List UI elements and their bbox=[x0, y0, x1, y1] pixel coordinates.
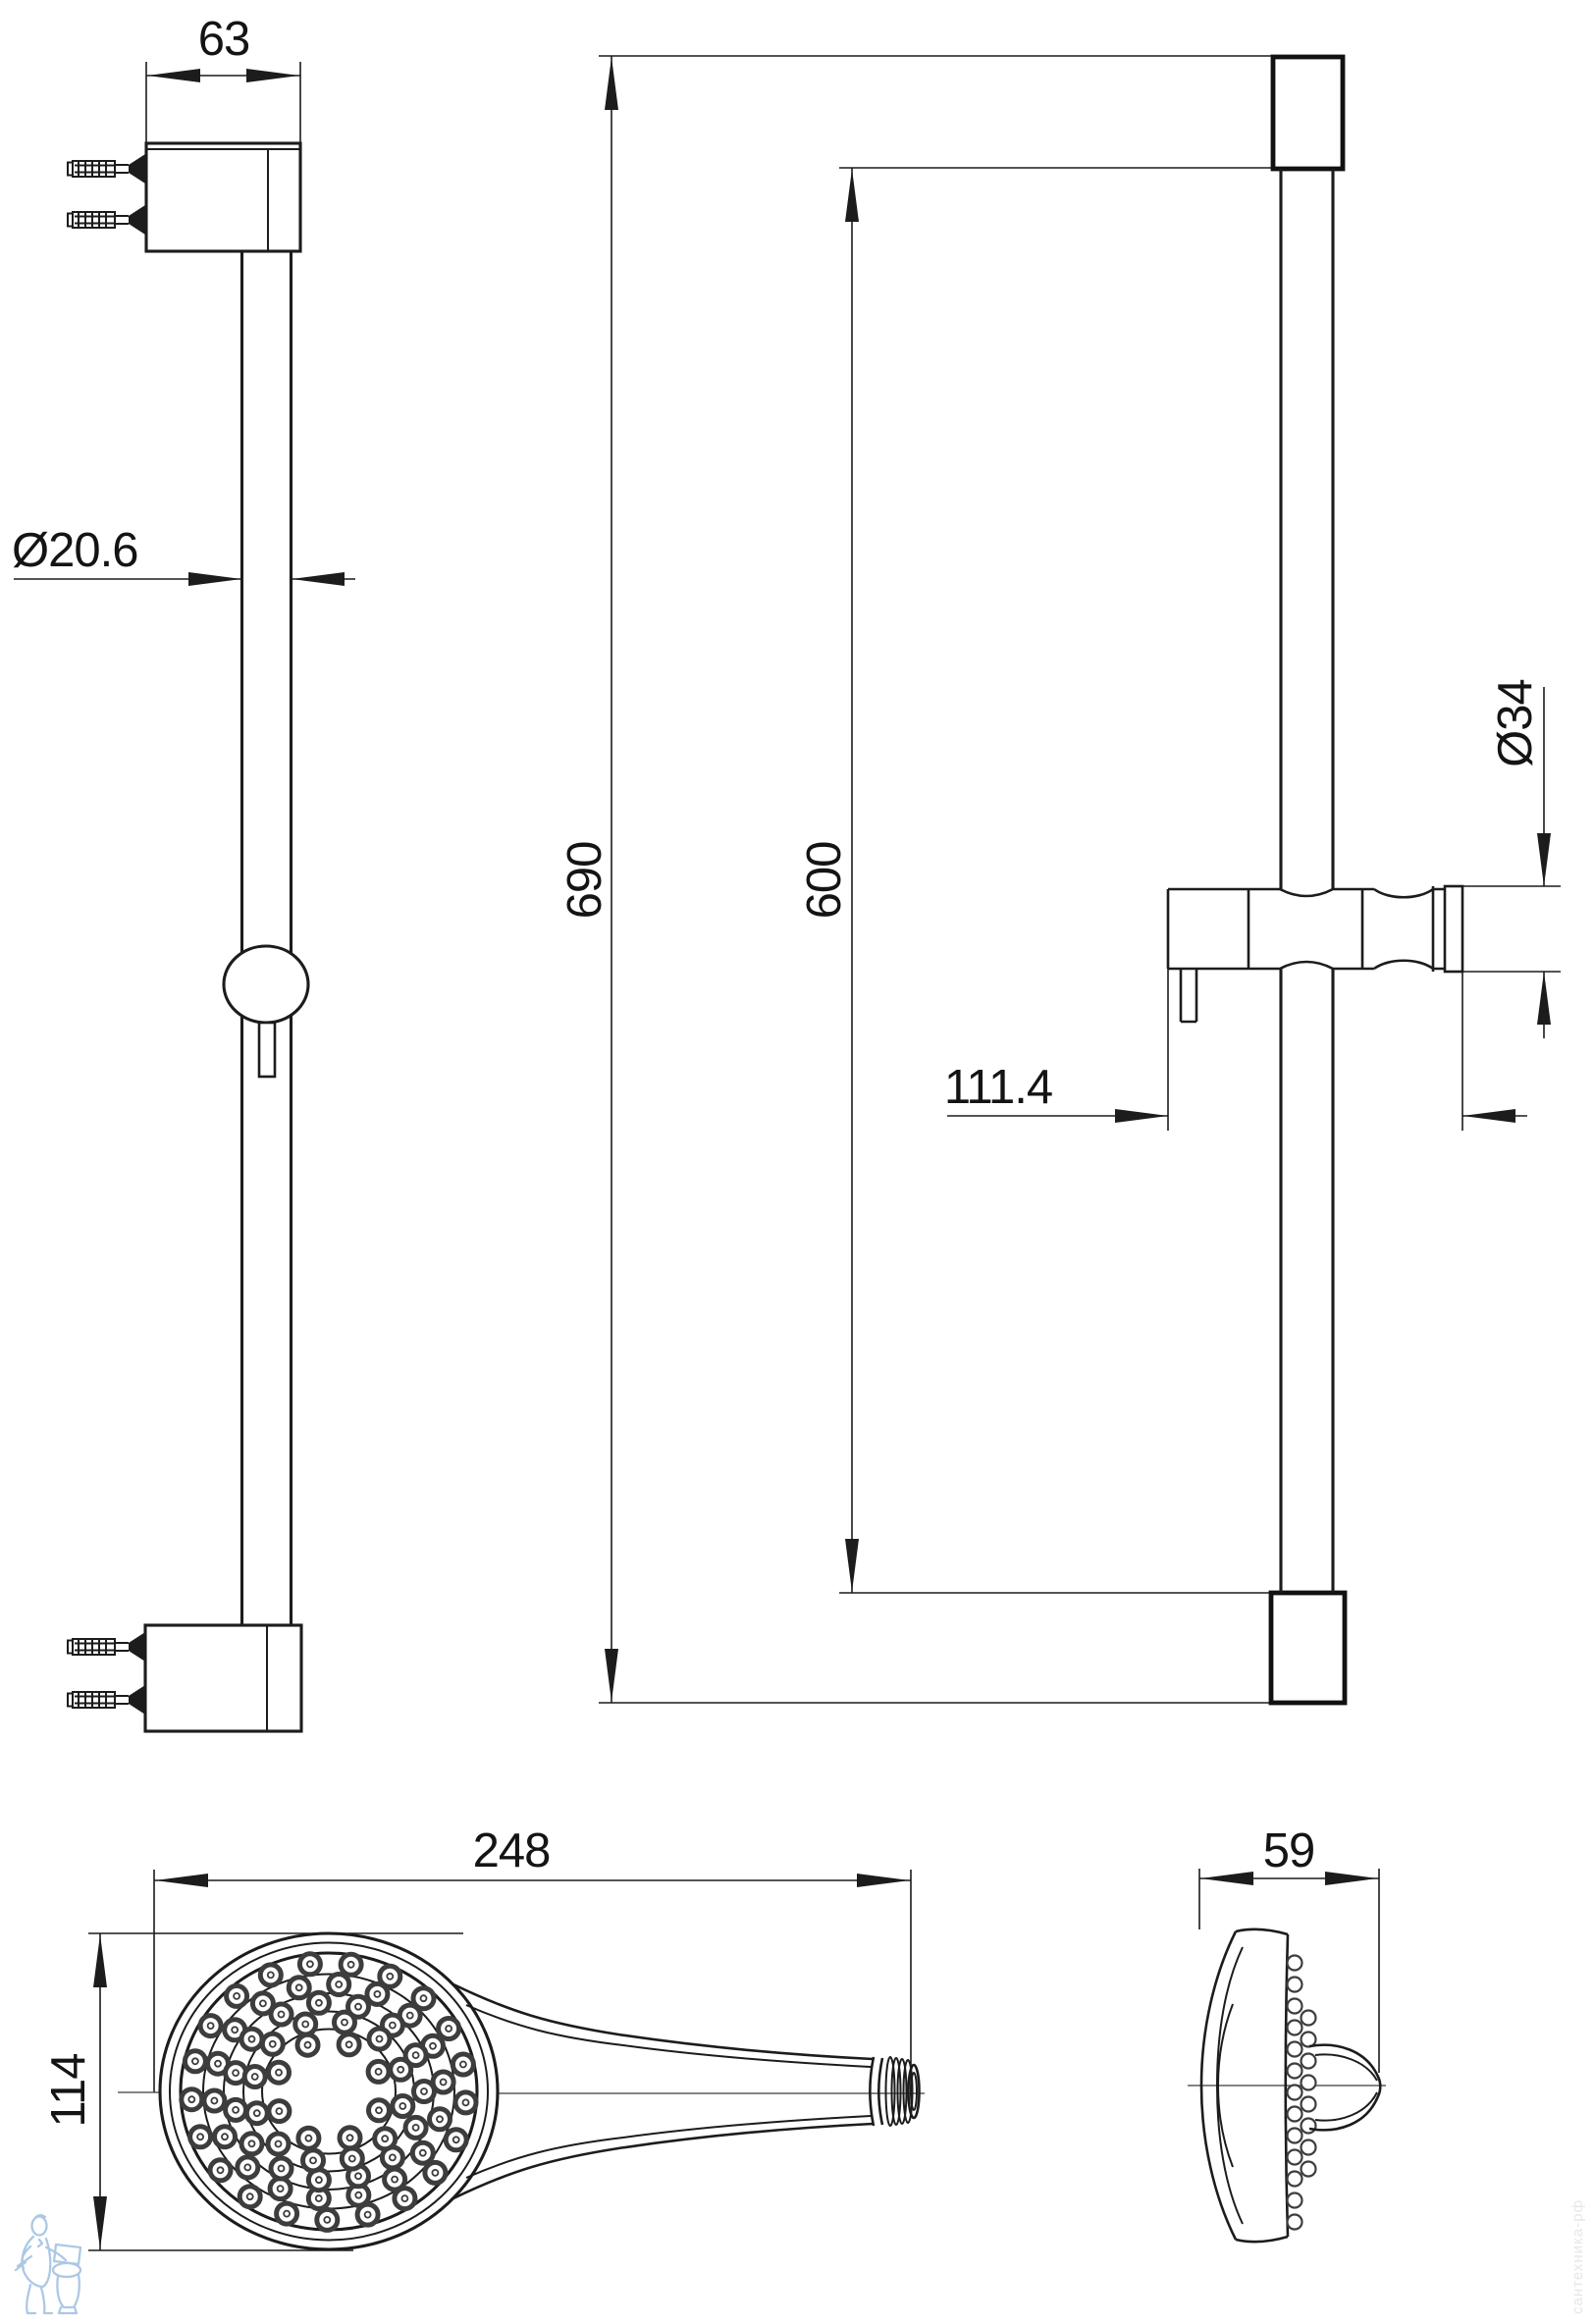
bar-bottom-cap bbox=[1271, 1593, 1345, 1703]
extension-lines bbox=[599, 56, 1273, 1703]
handle-flange bbox=[870, 2057, 882, 2126]
slider-lock-pin bbox=[259, 1023, 275, 1077]
dim-holder-depth: 111.4 bbox=[944, 1061, 1052, 1114]
handshower-side-view: 59 bbox=[1188, 1824, 1386, 2242]
shop-watermark-text: сантехника-рф bbox=[1569, 2199, 1586, 2314]
technical-drawing: 63 Ø20.6 690 bbox=[0, 0, 1594, 2324]
dim-holder-diameter: Ø34 bbox=[1489, 679, 1542, 767]
overall-length-dimension: 690 bbox=[558, 56, 611, 1703]
dim-handshower-length: 248 bbox=[473, 1824, 551, 1877]
wall-screw-icons bbox=[68, 154, 145, 1715]
shower-holder bbox=[1168, 886, 1462, 1022]
handshower-top-view: 248 114 bbox=[42, 1824, 925, 2250]
bar-tube-side bbox=[1281, 169, 1333, 1593]
dim-head-diameter: 114 bbox=[42, 2053, 95, 2127]
rail-side-view: 690 600 Ø34 111.4 bbox=[558, 56, 1561, 1703]
side-handle-stub bbox=[1309, 2045, 1380, 2131]
spray-face bbox=[160, 1933, 498, 2249]
holder-depth-dimension: 111.4 bbox=[944, 969, 1527, 1131]
dim-bracket-width: 63 bbox=[198, 13, 250, 66]
slider-ring bbox=[224, 946, 308, 1077]
holder-lock-lever bbox=[1181, 969, 1196, 1022]
rail-front-view: 63 Ø20.6 bbox=[12, 13, 355, 1731]
dim-handshower-depth: 59 bbox=[1263, 1824, 1315, 1877]
handshower-handle bbox=[453, 1984, 920, 2198]
side-nozzle-bumps bbox=[1288, 1956, 1316, 2230]
dim-bar-length: 600 bbox=[798, 842, 851, 920]
slide-bar-tube bbox=[242, 251, 292, 1625]
bar-length-dimension: 600 bbox=[798, 168, 852, 1593]
drawing-sheet: 63 Ø20.6 690 bbox=[0, 0, 1594, 2324]
dim-bar-diameter: Ø20.6 bbox=[12, 524, 137, 577]
bar-diameter-dimension: Ø20.6 bbox=[12, 524, 355, 579]
dim-overall-length: 690 bbox=[558, 842, 611, 920]
bar-top-cap bbox=[1273, 57, 1343, 169]
handle-thread-connector bbox=[886, 2057, 920, 2126]
wall-bracket-bottom bbox=[145, 1625, 301, 1731]
wall-bracket-top bbox=[146, 143, 300, 251]
plumber-mascot-watermark bbox=[16, 2215, 80, 2313]
handshower-depth-dimension: 59 bbox=[1199, 1824, 1379, 2073]
